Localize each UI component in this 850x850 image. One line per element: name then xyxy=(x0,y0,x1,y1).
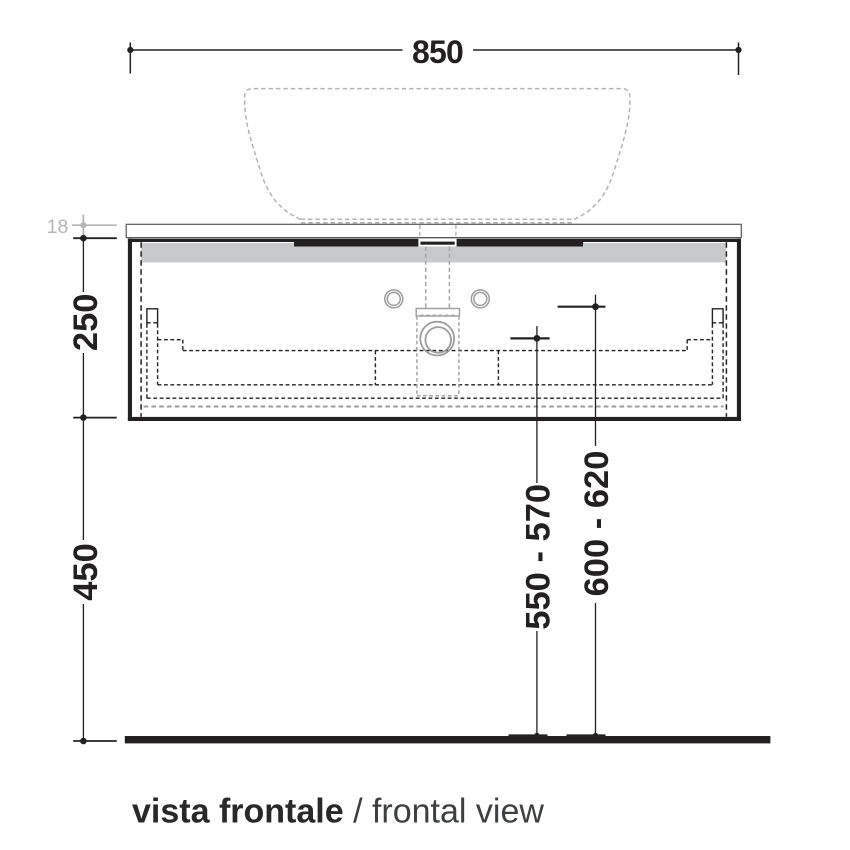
svg-text:550 - 570: 550 - 570 xyxy=(519,484,557,630)
svg-text:18: 18 xyxy=(47,216,69,238)
svg-text:600 - 620: 600 - 620 xyxy=(578,451,616,597)
svg-text:vista frontale / frontal view: vista frontale / frontal view xyxy=(132,792,544,830)
svg-text:250: 250 xyxy=(67,294,105,352)
svg-text:850: 850 xyxy=(412,34,463,70)
svg-text:450: 450 xyxy=(67,543,105,601)
